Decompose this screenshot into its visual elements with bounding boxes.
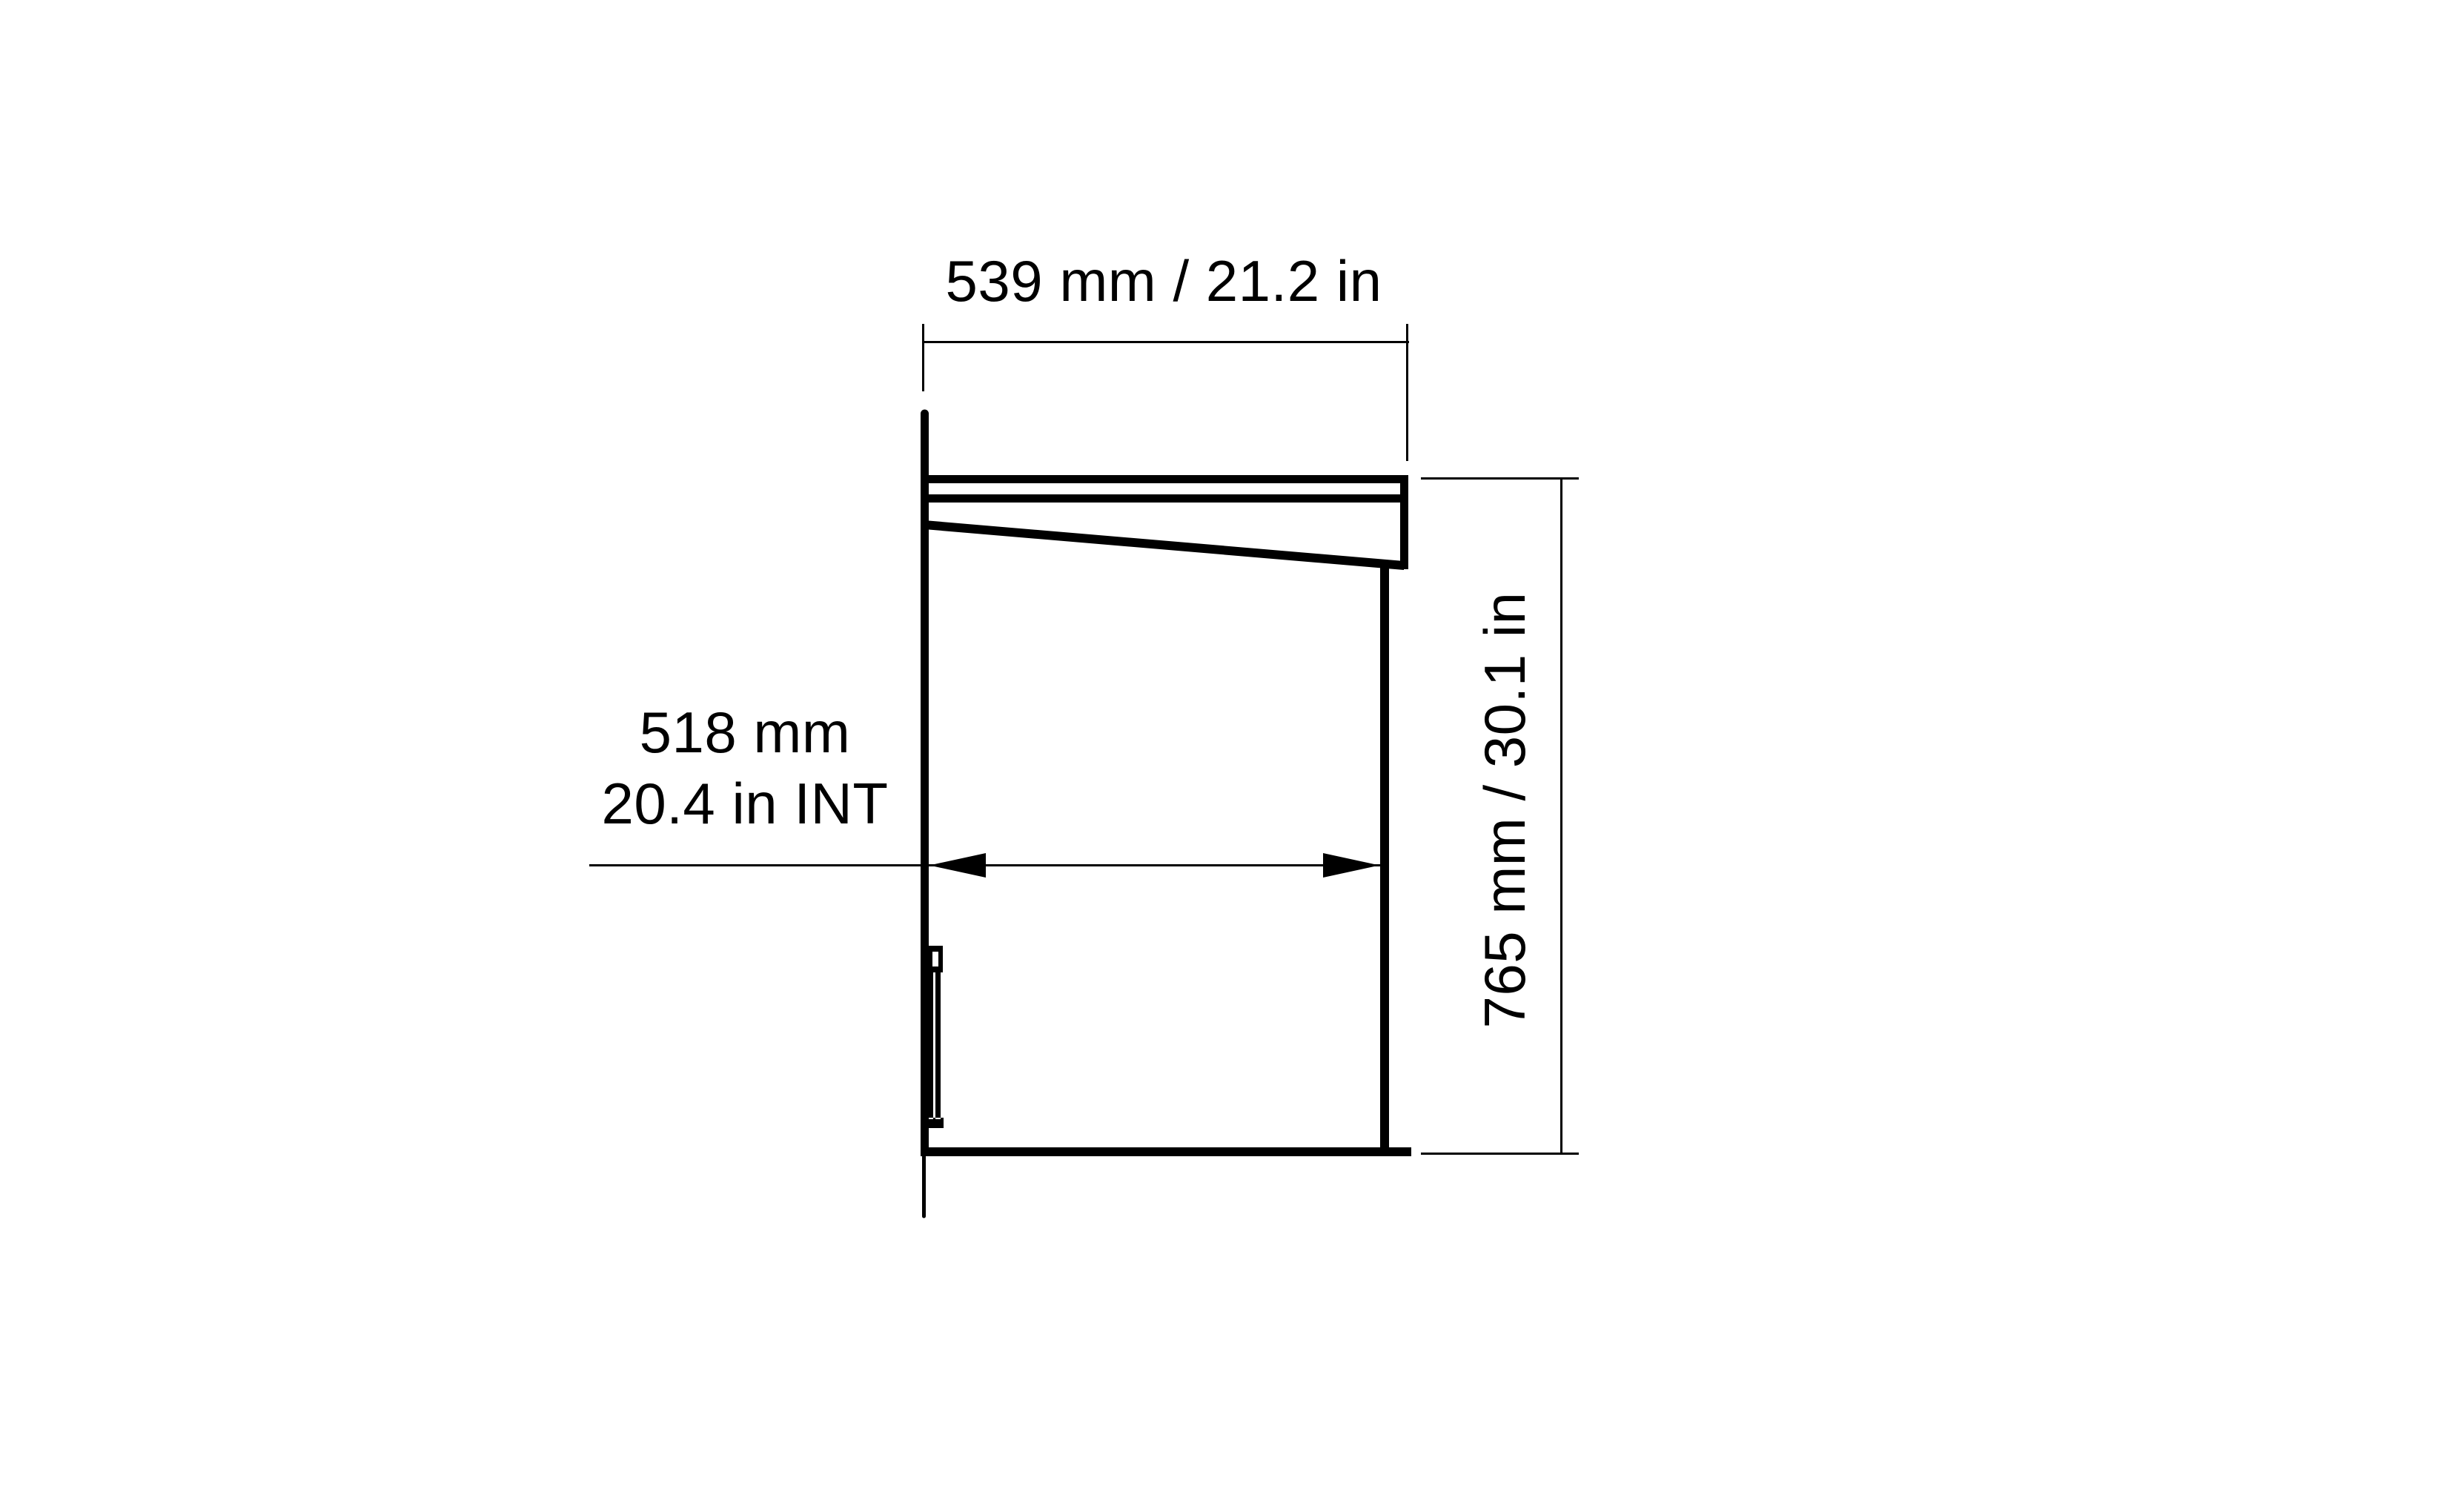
height-dimension-extension-top bbox=[1421, 477, 1579, 480]
worktop-right-edge bbox=[1400, 475, 1408, 569]
internal-dimension-line bbox=[929, 864, 1380, 866]
worktop-top-edge bbox=[927, 475, 1408, 483]
height-dimension-extension-bottom bbox=[1421, 1153, 1579, 1155]
worktop-bottom-edge bbox=[927, 494, 1408, 503]
bottom-panel bbox=[921, 1147, 1411, 1156]
dimension-arrowhead-right bbox=[1323, 853, 1379, 878]
technical-drawing-page: 539 mm / 21.2 in 518 mm 20.4 in INT 765 … bbox=[0, 0, 2446, 1512]
internal-dimension-leader-line bbox=[589, 864, 929, 866]
internal-depth-dimension-label: 518 mm 20.4 in INT bbox=[601, 697, 888, 839]
width-dimension-label: 539 mm / 21.2 in bbox=[946, 252, 1382, 310]
top-dimension-extension-left bbox=[922, 324, 924, 391]
cabinet-side-elevation-drawing bbox=[0, 0, 2446, 1512]
top-dimension-line bbox=[923, 341, 1409, 343]
internal-depth-in-label: 20.4 in INT bbox=[601, 768, 888, 839]
height-dimension-line bbox=[1560, 478, 1562, 1155]
sloped-underside bbox=[924, 520, 1404, 570]
internal-depth-mm-label: 518 mm bbox=[601, 697, 888, 768]
top-dimension-extension-right bbox=[1406, 324, 1408, 461]
right-side-panel bbox=[1380, 562, 1389, 1147]
height-dimension-label: 765 mm / 30.1 in bbox=[1476, 592, 1534, 1029]
dimension-arrowhead-left bbox=[929, 853, 986, 878]
